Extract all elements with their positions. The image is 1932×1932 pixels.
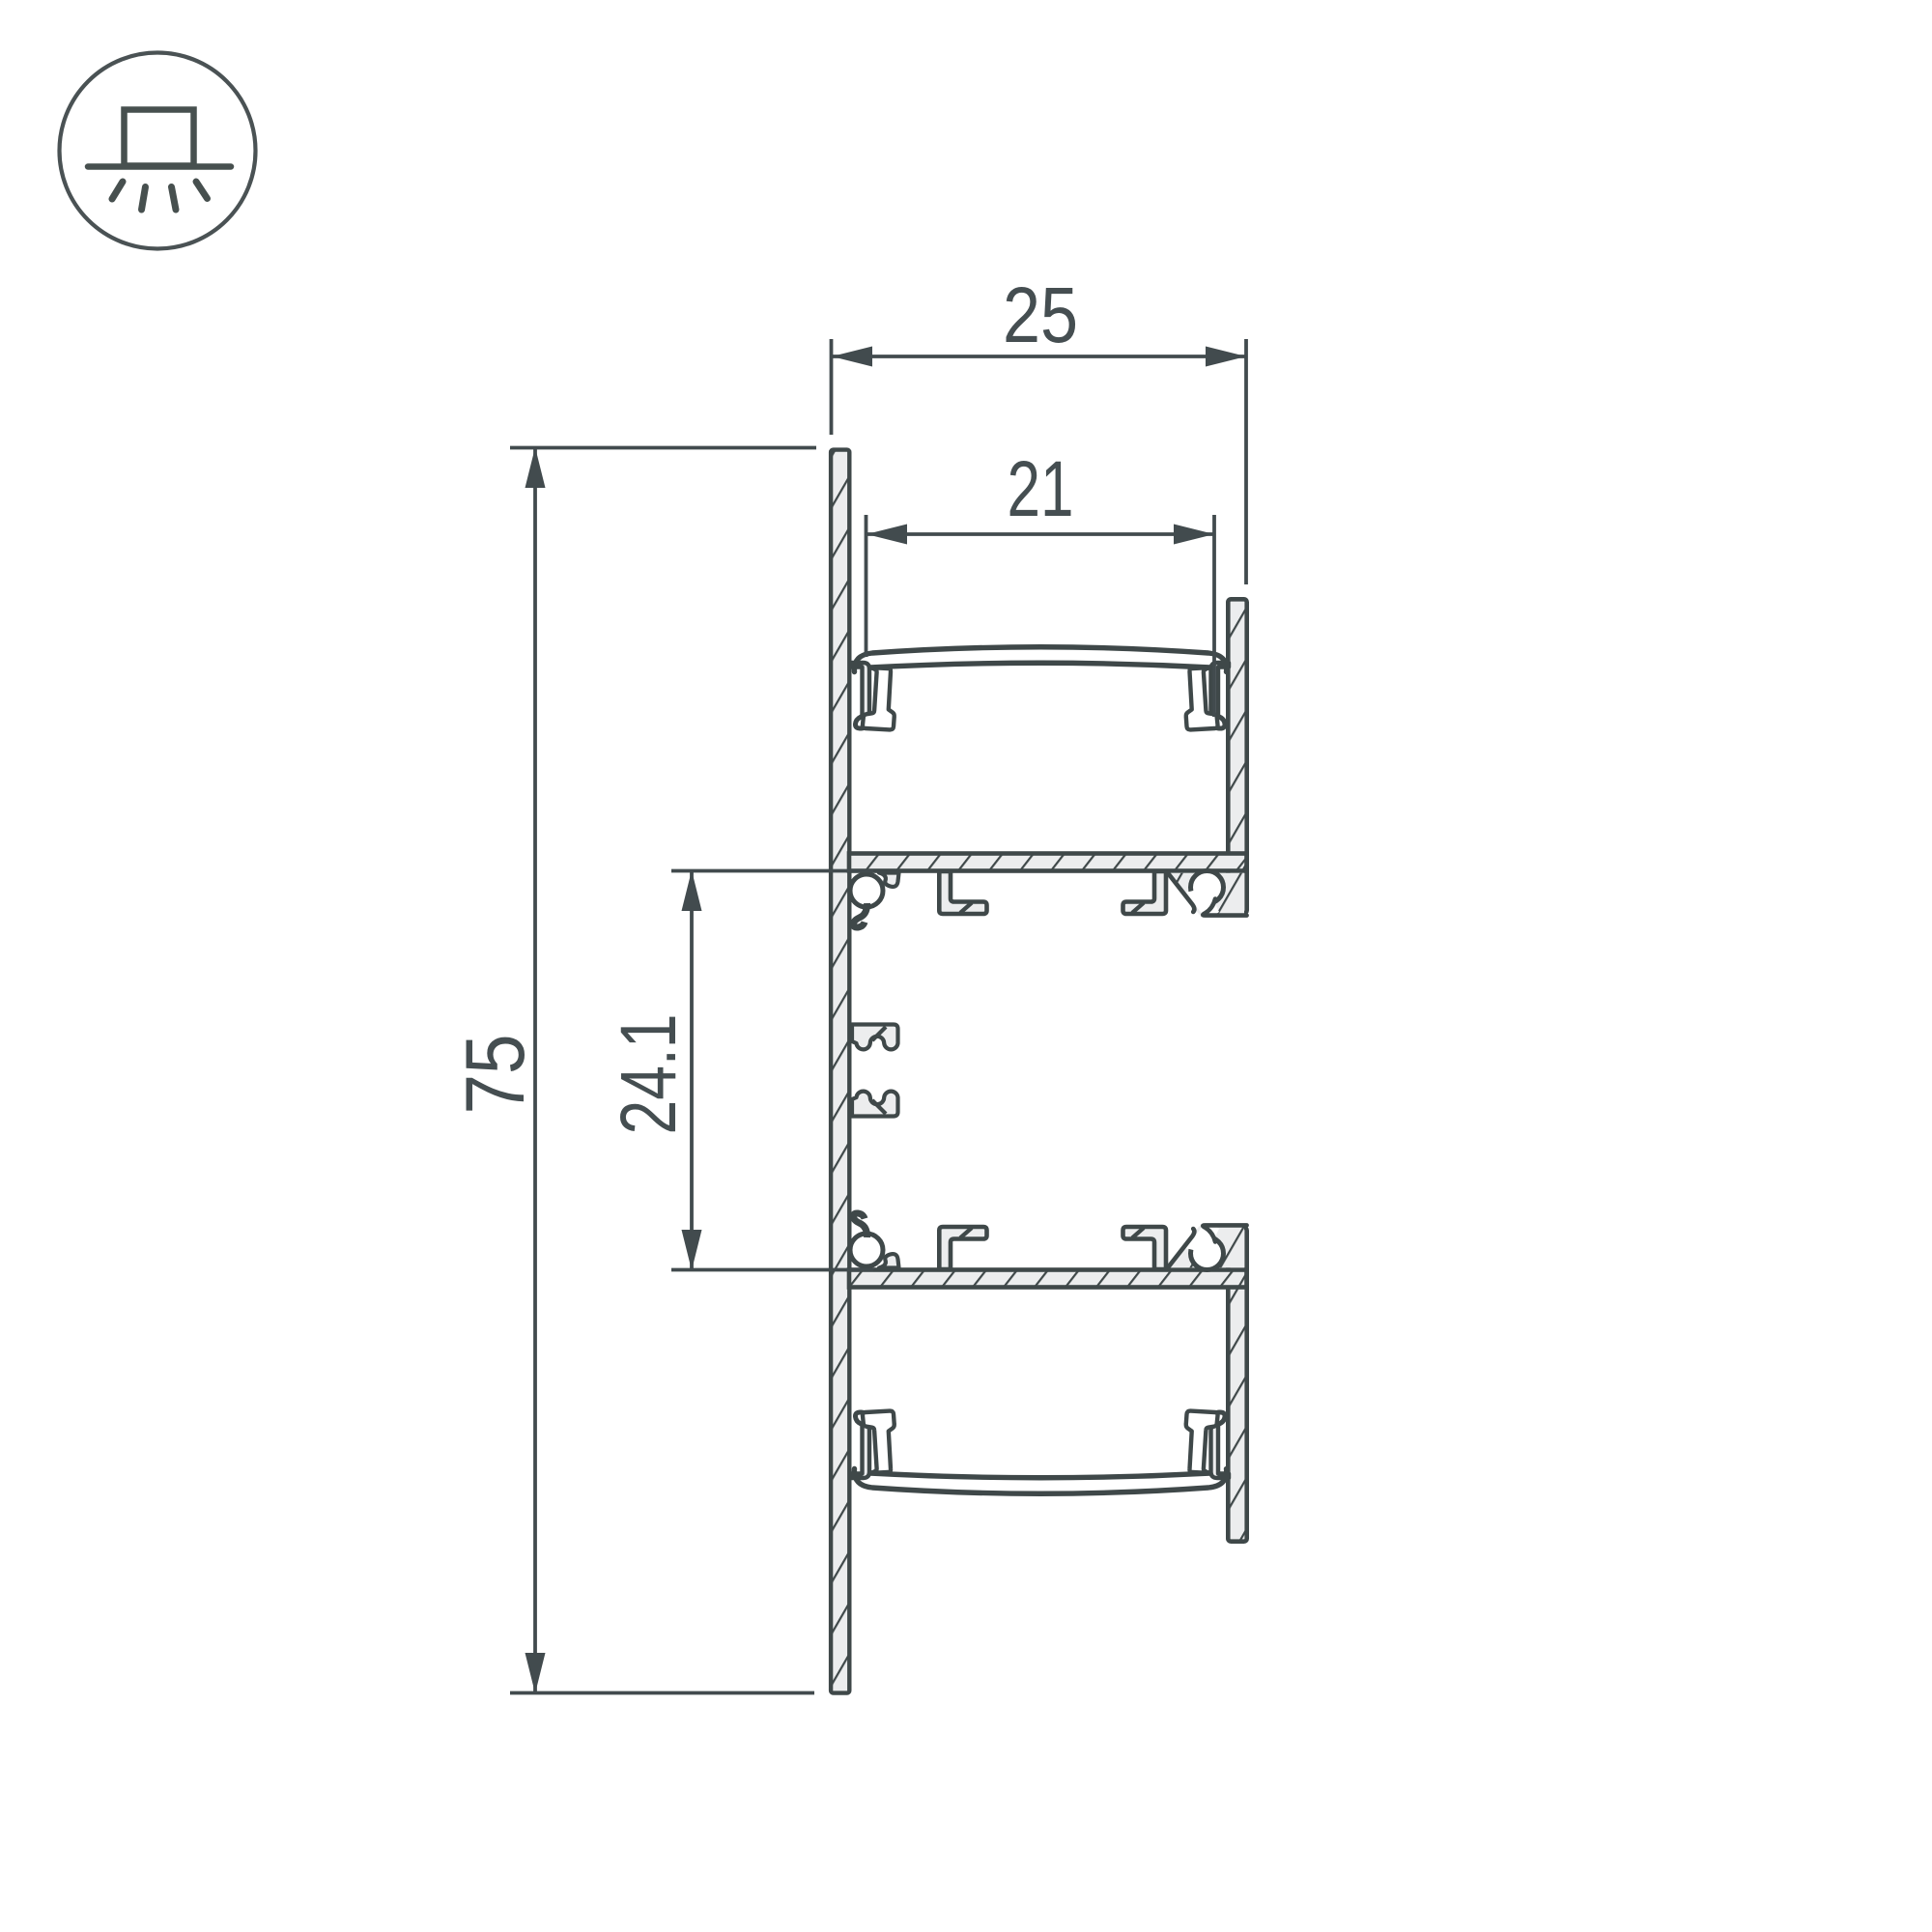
svg-text:25: 25 (1003, 271, 1078, 359)
svg-text:21: 21 (1008, 445, 1074, 533)
svg-text:24.1: 24.1 (605, 1014, 693, 1135)
svg-text:75: 75 (449, 1035, 542, 1115)
